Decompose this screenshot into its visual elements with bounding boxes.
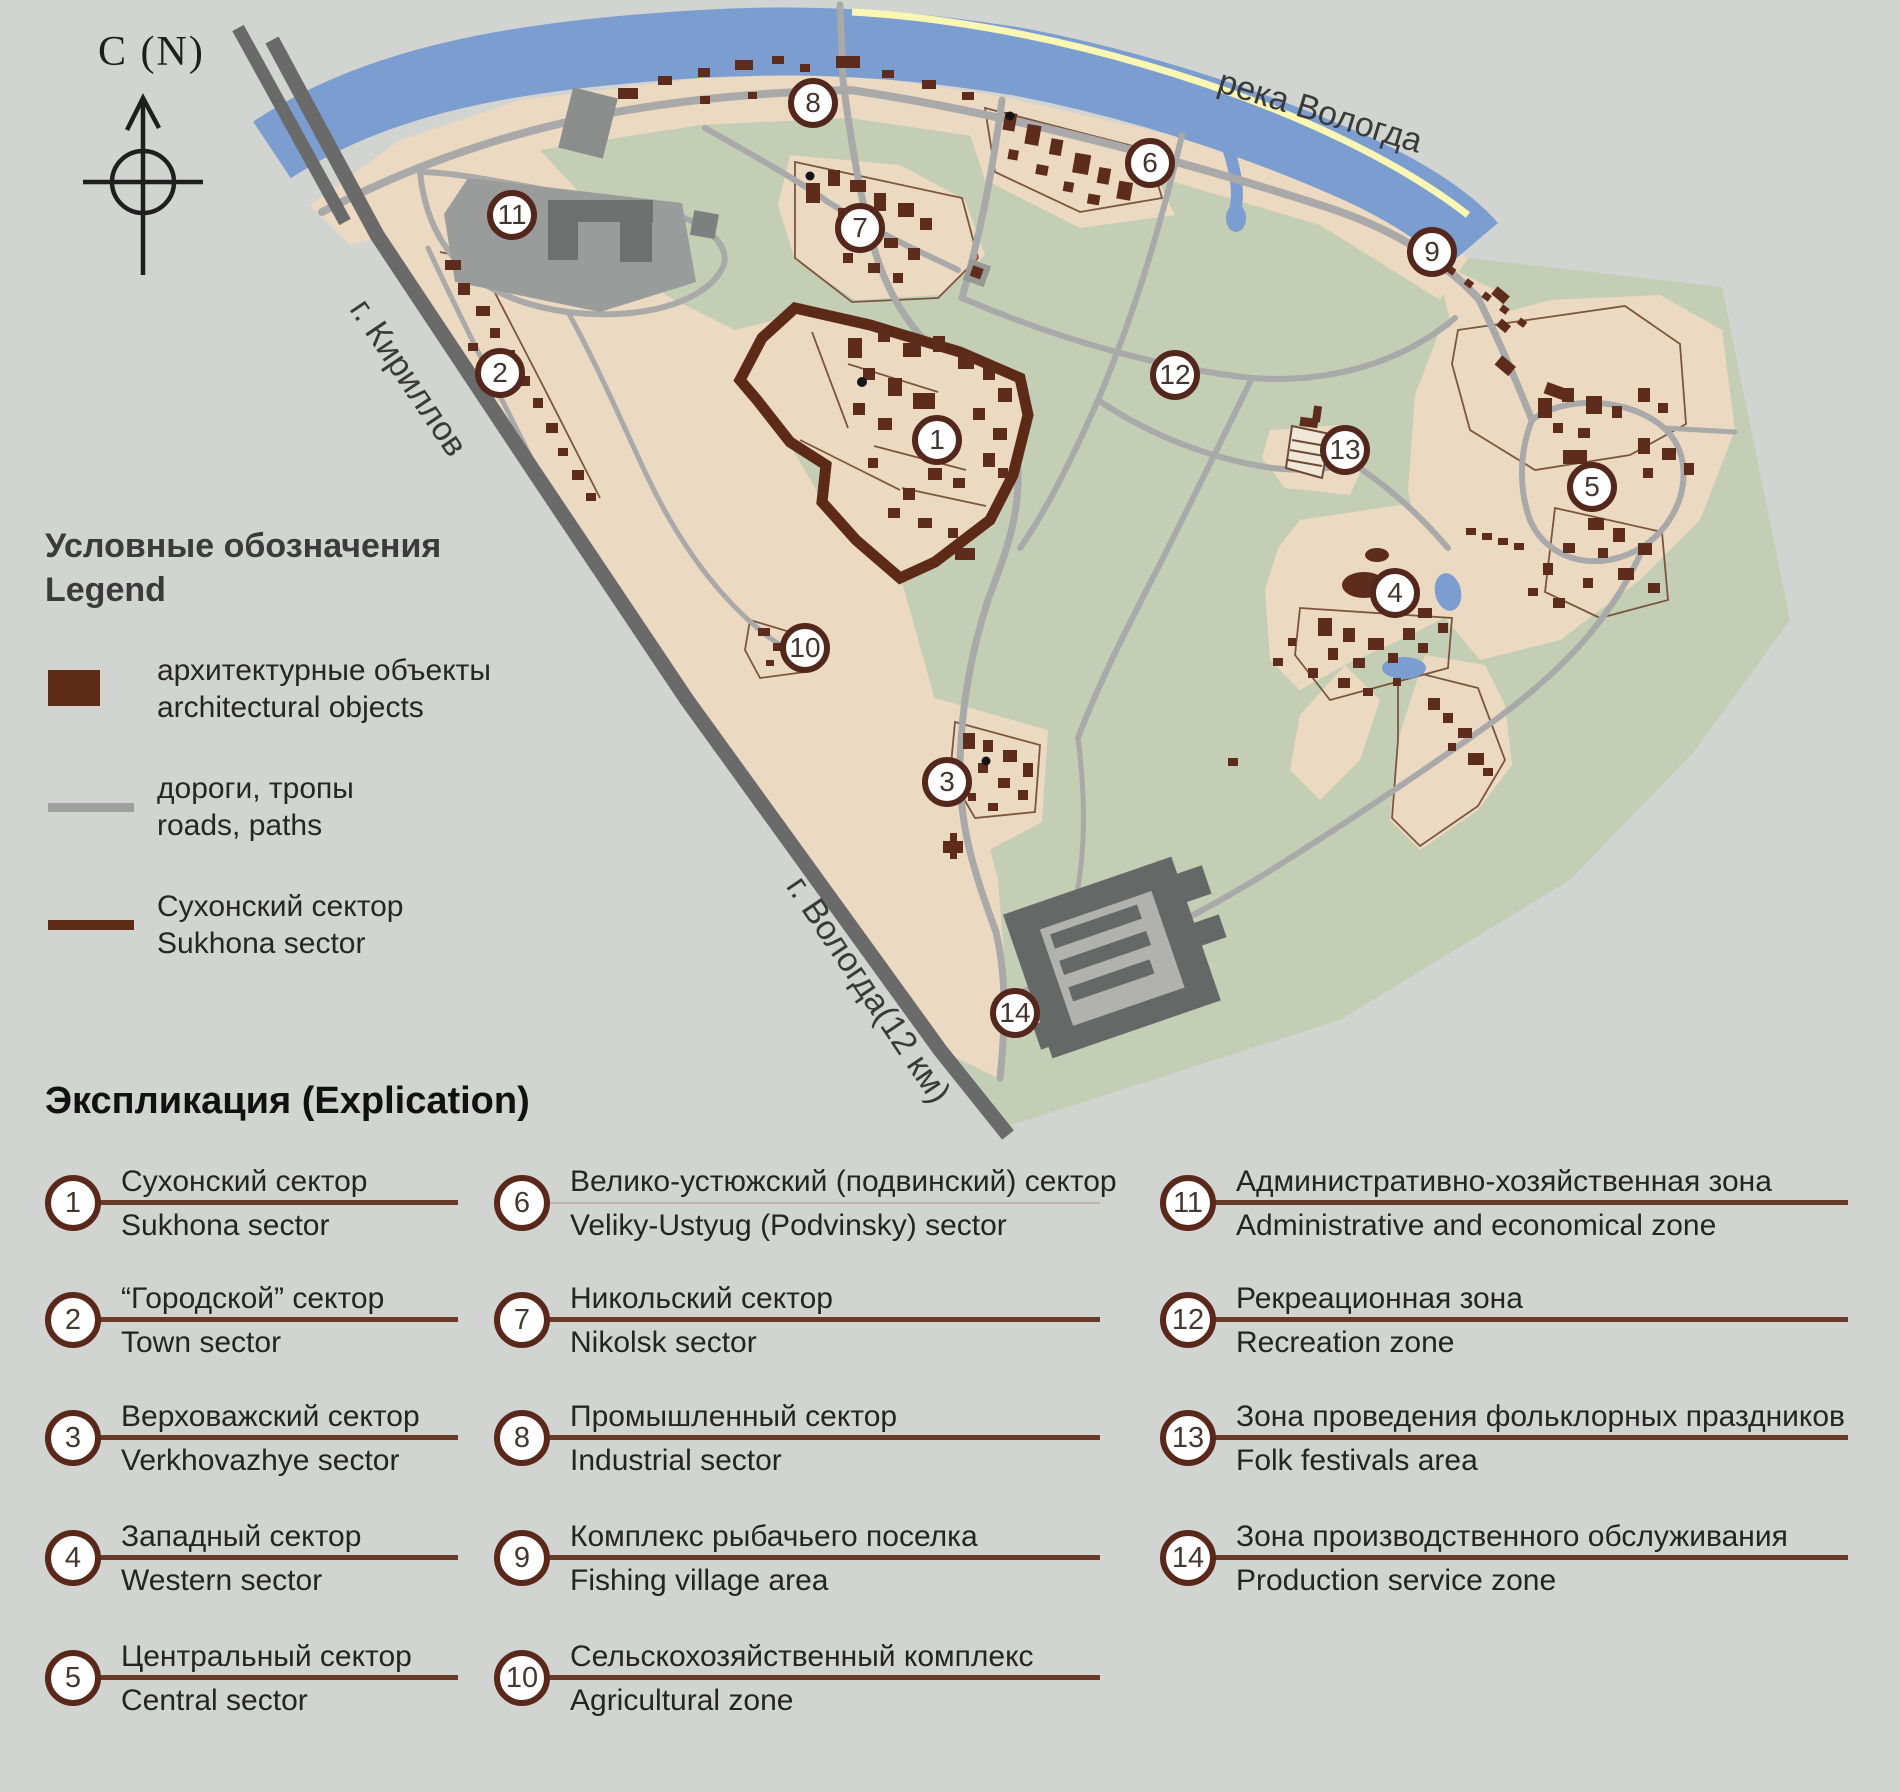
explication-line — [1210, 1317, 1848, 1322]
explication-number-badge: 6 — [494, 1175, 550, 1231]
explication-label-en: Nikolsk sector — [570, 1326, 757, 1360]
explication-number-badge: 1 — [45, 1175, 101, 1231]
explication-number-badge: 13 — [1160, 1410, 1216, 1466]
map-marker: 2 — [475, 348, 525, 398]
map-marker: 4 — [1370, 568, 1420, 618]
legend-title-ru: Условные обозначения — [45, 524, 515, 568]
legend-label-ru: Сухонский сектор — [157, 888, 515, 925]
map-marker: 8 — [788, 78, 838, 128]
explication-label-en: Western sector — [121, 1564, 322, 1598]
legend-label-en: roads, paths — [157, 807, 515, 844]
legend-item-architectural-objects: архитектурные объекты architectural obje… — [45, 652, 515, 726]
explication-number-badge: 11 — [1160, 1175, 1216, 1231]
explication-label-ru: Административно-хозяйственная зона — [1236, 1165, 1772, 1199]
explication-label-ru: Верховажский сектор — [121, 1400, 420, 1434]
explication-number-badge: 10 — [494, 1650, 550, 1706]
explication-item: 3 Верховажский сектор Verkhovazhye secto… — [45, 1396, 458, 1492]
legend-label-en: Sukhona sector — [157, 925, 515, 962]
explication-label-en: Recreation zone — [1236, 1326, 1454, 1360]
explication-item: 12 Рекреационная зона Recreation zone — [1160, 1278, 1848, 1374]
explication-label-ru: Сухонский сектор — [121, 1165, 367, 1199]
map-marker-number: 1 — [929, 424, 945, 456]
compass-icon — [30, 60, 260, 290]
map-marker-number: 14 — [999, 997, 1030, 1029]
explication-label-ru: Никольский сектор — [570, 1282, 833, 1316]
explication-line — [95, 1435, 458, 1440]
explication-item: 13 Зона проведения фольклорных празднико… — [1160, 1396, 1848, 1492]
explication-line — [544, 1435, 1100, 1440]
explication-label-ru: Рекреационная зона — [1236, 1282, 1523, 1316]
explication-number-badge: 8 — [494, 1410, 550, 1466]
explication-item: 6 Велико-устюжский (подвинский) сектор V… — [494, 1161, 1100, 1257]
explication-item: 11 Административно-хозяйственная зона Ad… — [1160, 1161, 1848, 1257]
explication-number-badge: 2 — [45, 1292, 101, 1348]
explication-label-ru: Зона производственного обслуживания — [1236, 1520, 1788, 1554]
map-marker-number: 10 — [789, 632, 820, 664]
explication-number-badge: 3 — [45, 1410, 101, 1466]
explication-number-badge: 7 — [494, 1292, 550, 1348]
explication-item: 4 Западный сектор Western sector — [45, 1516, 458, 1612]
map-marker-number: 2 — [492, 357, 508, 389]
map-marker-number: 12 — [1159, 359, 1190, 391]
map-marker: 10 — [780, 623, 830, 673]
explication-label-ru: Велико-устюжский (подвинский) сектор — [570, 1165, 1117, 1199]
map-marker-number: 11 — [497, 199, 526, 231]
legend: Условные обозначения Legend архитектурны… — [45, 524, 515, 612]
explication-item: 5 Центральный сектор Central sector — [45, 1636, 458, 1732]
explication-label-en: Sukhona sector — [121, 1209, 329, 1243]
explication-line — [95, 1555, 458, 1560]
map-marker-number: 13 — [1329, 434, 1360, 466]
legend-title-en: Legend — [45, 568, 515, 612]
map-marker: 5 — [1567, 462, 1617, 512]
legend-label-en: architectural objects — [157, 689, 515, 726]
explication-label-en: Production service zone — [1236, 1564, 1556, 1598]
explication-label-ru: “Городской” сектор — [121, 1282, 384, 1316]
map-marker: 1 — [912, 415, 962, 465]
explication-line — [544, 1555, 1100, 1560]
explication-line — [544, 1202, 1100, 1204]
explication-item: 2 “Городской” сектор Town sector — [45, 1278, 458, 1374]
map-marker: 14 — [990, 988, 1040, 1038]
explication-label-en: Town sector — [121, 1326, 281, 1360]
compass: С (N) — [30, 20, 290, 260]
explication-line — [544, 1675, 1100, 1680]
explication-item: 1 Сухонский сектор Sukhona sector — [45, 1161, 458, 1257]
explication-number-badge: 4 — [45, 1530, 101, 1586]
explication-label-ru: Западный сектор — [121, 1520, 361, 1554]
map-marker: 3 — [922, 757, 972, 807]
explication-label-en: Folk festivals area — [1236, 1444, 1478, 1478]
roads-paths-swatch — [48, 803, 134, 812]
map-marker-number: 8 — [805, 87, 821, 119]
architectural-objects-swatch — [48, 670, 100, 706]
map-marker: 9 — [1407, 227, 1457, 277]
legend-item-roads-paths: дороги, тропы roads, paths — [45, 770, 515, 844]
explication-line — [1210, 1555, 1848, 1560]
legend-label-ru: дороги, тропы — [157, 770, 515, 807]
explication-number-badge: 5 — [45, 1650, 101, 1706]
explication-label-en: Verkhovazhye sector — [121, 1444, 399, 1478]
sukhona-sector-swatch — [48, 920, 134, 930]
explication-item: 10 Сельскохозяйственный комплекс Agricul… — [494, 1636, 1100, 1732]
map-marker: 7 — [835, 203, 885, 253]
map-marker-number: 6 — [1142, 147, 1158, 179]
map-marker-number: 4 — [1387, 577, 1403, 609]
explication-line — [95, 1675, 458, 1680]
explication-label-en: Agricultural zone — [570, 1684, 793, 1718]
map-marker-number: 3 — [939, 766, 955, 798]
explication-line — [1210, 1435, 1848, 1440]
legend-item-sukhona-sector: Сухонский сектор Sukhona sector — [45, 888, 515, 962]
explication-title: Экспликация (Explication) — [45, 1080, 530, 1123]
legend-label-ru: архитектурные объекты — [157, 652, 515, 689]
explication-item: 8 Промышленный сектор Industrial sector — [494, 1396, 1100, 1492]
map-marker: 11 — [487, 190, 537, 240]
explication-label-en: Central sector — [121, 1684, 308, 1718]
legend-title: Условные обозначения Legend — [45, 524, 515, 612]
map-marker-number: 5 — [1584, 471, 1600, 503]
explication-item: 9 Комплекс рыбачьего поселка Fishing vil… — [494, 1516, 1100, 1612]
map-marker: 13 — [1320, 425, 1370, 475]
map-marker: 12 — [1150, 350, 1200, 400]
explication-item: 7 Никольский сектор Nikolsk sector — [494, 1278, 1100, 1374]
explication-label-ru: Сельскохозяйственный комплекс — [570, 1640, 1034, 1674]
explication-label-en: Administrative and economical zone — [1236, 1209, 1716, 1243]
explication-label-en: Veliky-Ustyug (Podvinsky) sector — [570, 1209, 1007, 1243]
explication-label-en: Industrial sector — [570, 1444, 782, 1478]
explication-label-ru: Центральный сектор — [121, 1640, 412, 1674]
explication-item: 14 Зона производственного обслуживания P… — [1160, 1516, 1848, 1612]
explication-line — [95, 1200, 458, 1205]
explication-line — [544, 1317, 1100, 1322]
museum-site-plan: река Вологда г. Кириллов г. Вологда(12 к… — [0, 0, 1900, 1791]
explication-line — [1210, 1200, 1848, 1205]
explication-label-ru: Промышленный сектор — [570, 1400, 897, 1434]
explication-label-en: Fishing village area — [570, 1564, 828, 1598]
map-marker-number: 9 — [1424, 236, 1440, 268]
explication-number-badge: 9 — [494, 1530, 550, 1586]
explication-label-ru: Зона проведения фольклорных праздников — [1236, 1400, 1845, 1434]
explication-label-ru: Комплекс рыбачьего поселка — [570, 1520, 978, 1554]
explication-line — [95, 1317, 458, 1322]
explication-number-badge: 14 — [1160, 1530, 1216, 1586]
map-marker: 6 — [1125, 138, 1175, 188]
explication-number-badge: 12 — [1160, 1292, 1216, 1348]
map-marker-number: 7 — [852, 212, 868, 244]
